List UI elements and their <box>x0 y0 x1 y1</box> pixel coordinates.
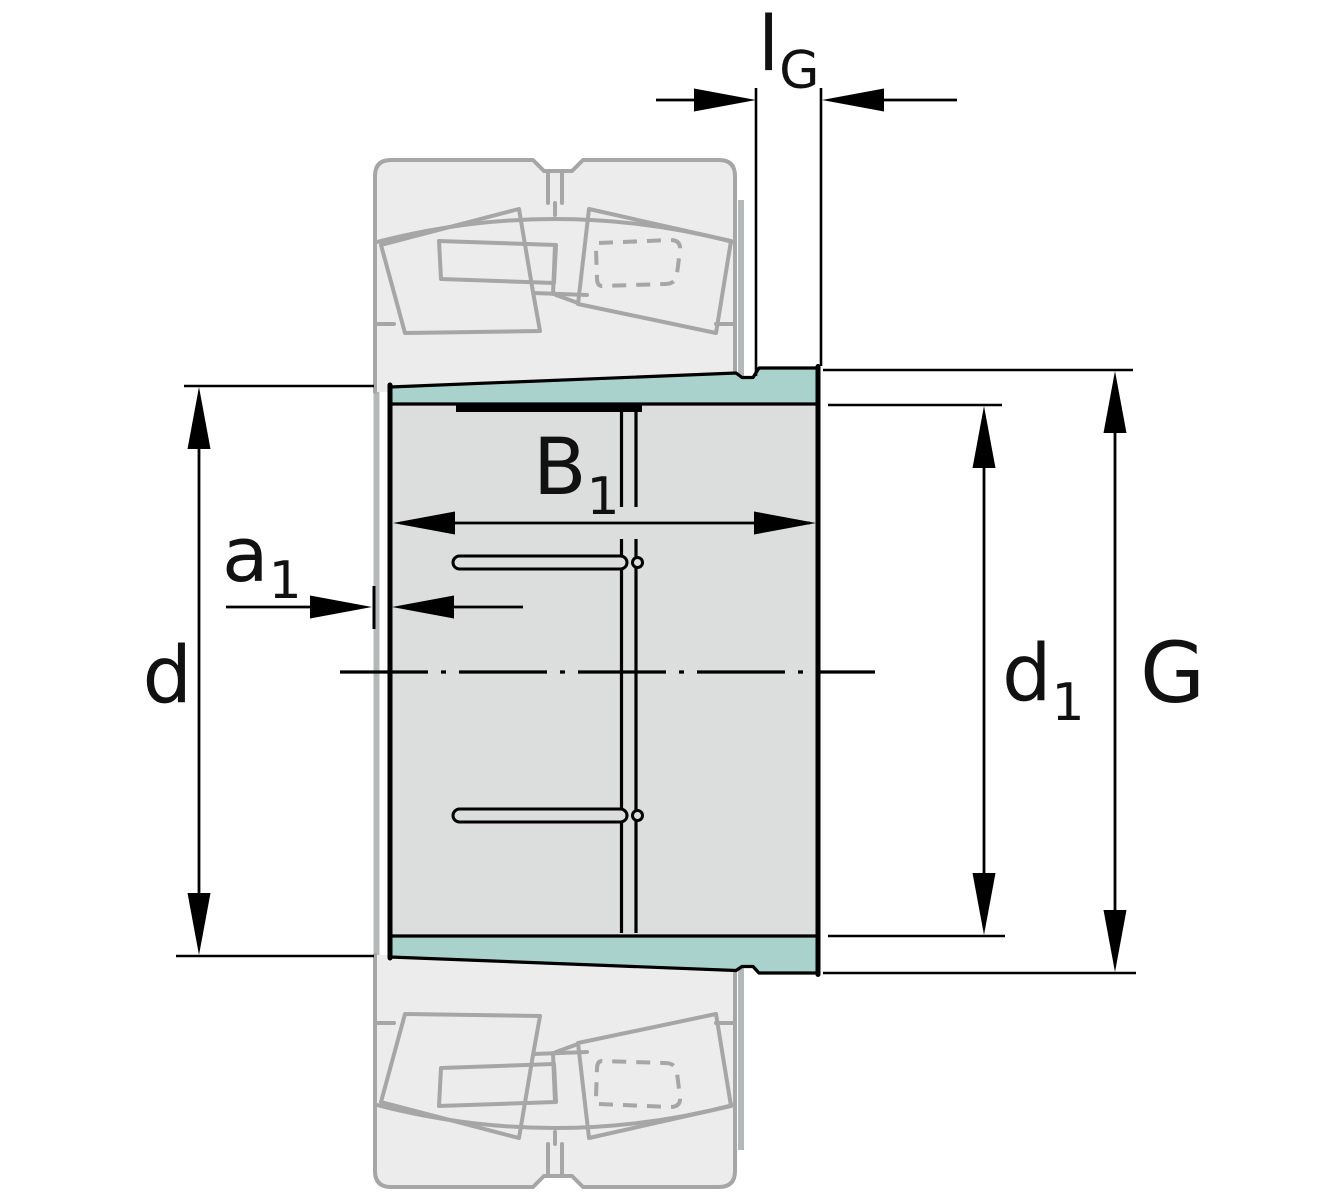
slot-hole-lower <box>633 811 643 821</box>
a1-arrow-left <box>310 596 372 619</box>
label-lG: lG <box>758 0 819 101</box>
d1-arrow-bottom <box>973 873 996 935</box>
drawing-canvas: lG B1 a1 d <box>0 0 1330 1200</box>
d-arrow-top <box>188 387 211 449</box>
label-a1: a1 <box>222 510 302 611</box>
label-d1: d1 <box>1002 629 1085 733</box>
cage-divider <box>553 245 555 294</box>
slot-upper <box>453 556 627 569</box>
slot-hole-upper <box>633 558 643 568</box>
adapter-sleeve-diagram: lG B1 a1 d <box>0 0 1330 1200</box>
G-arrow-bottom <box>1104 910 1127 972</box>
lG-arrow-left <box>694 89 756 112</box>
slot-lower <box>453 809 627 822</box>
lG-arrow-right <box>822 89 884 112</box>
d1-arrow-top <box>973 406 996 468</box>
dimension-d: d <box>142 386 374 956</box>
ghost-bearing-top <box>375 160 735 392</box>
label-G: G <box>1140 624 1205 722</box>
ghost-bearing-bottom <box>375 955 735 1187</box>
d-arrow-bottom <box>188 893 211 955</box>
label-d: d <box>142 631 192 721</box>
G-arrow-top <box>1104 371 1127 433</box>
